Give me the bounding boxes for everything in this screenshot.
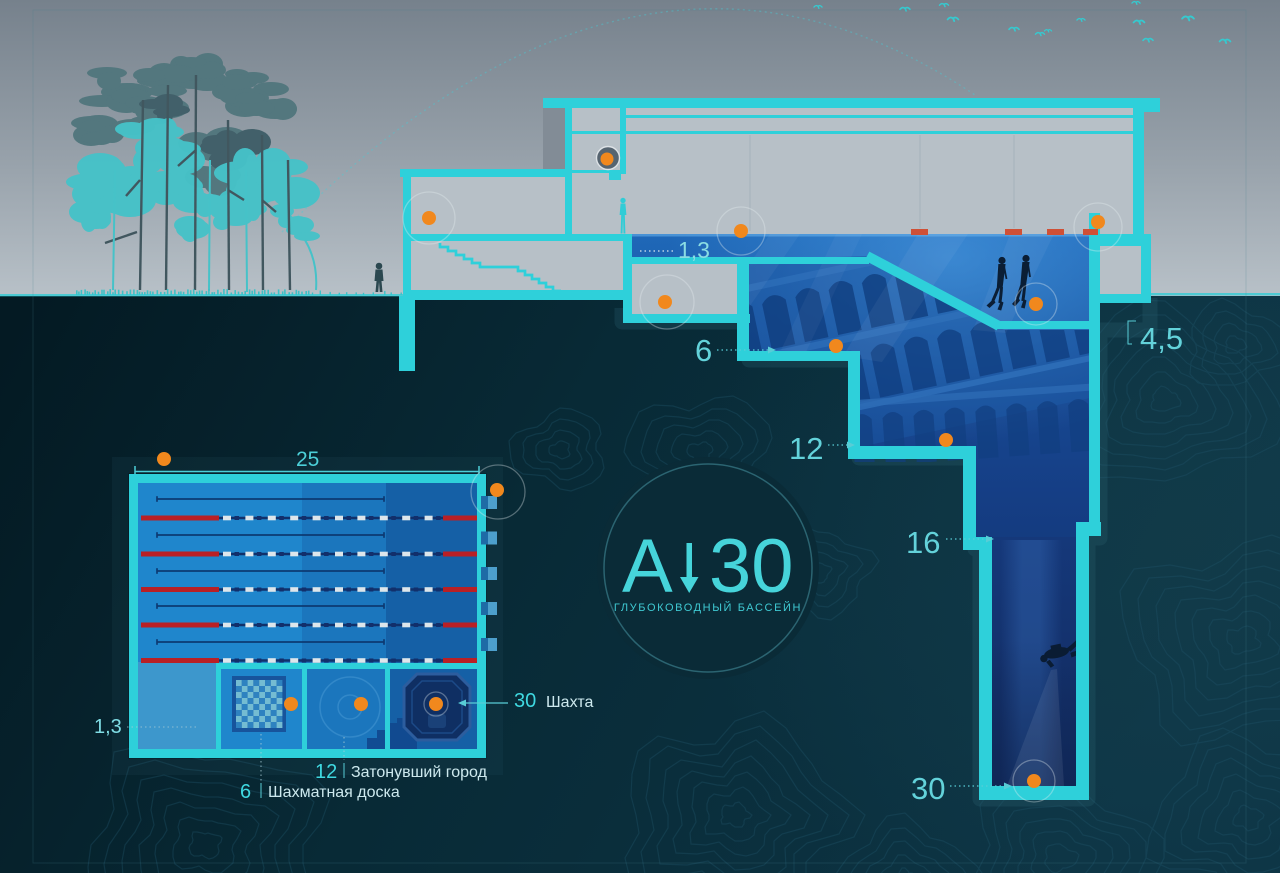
svg-text:30: 30	[911, 771, 945, 806]
svg-text:1,3: 1,3	[94, 716, 122, 738]
svg-text:ГЛУБОКОВОДНЫЙ БАССЕЙН: ГЛУБОКОВОДНЫЙ БАССЕЙН	[614, 601, 802, 614]
svg-text:Затонувший город: Затонувший город	[351, 764, 488, 781]
svg-text:Шахматная доска: Шахматная доска	[268, 784, 400, 801]
svg-text:6: 6	[240, 781, 251, 803]
svg-text:30: 30	[514, 690, 536, 712]
svg-text:12: 12	[789, 431, 823, 466]
svg-text:4,5: 4,5	[1140, 321, 1183, 356]
svg-text:А: А	[622, 524, 673, 609]
svg-text:1,3: 1,3	[678, 237, 710, 263]
svg-text:6: 6	[695, 333, 712, 368]
svg-text:12: 12	[315, 761, 337, 783]
svg-text:16: 16	[906, 525, 940, 560]
svg-text:Шахта: Шахта	[546, 694, 594, 711]
svg-text:25: 25	[296, 448, 319, 471]
svg-text:30: 30	[709, 524, 794, 609]
